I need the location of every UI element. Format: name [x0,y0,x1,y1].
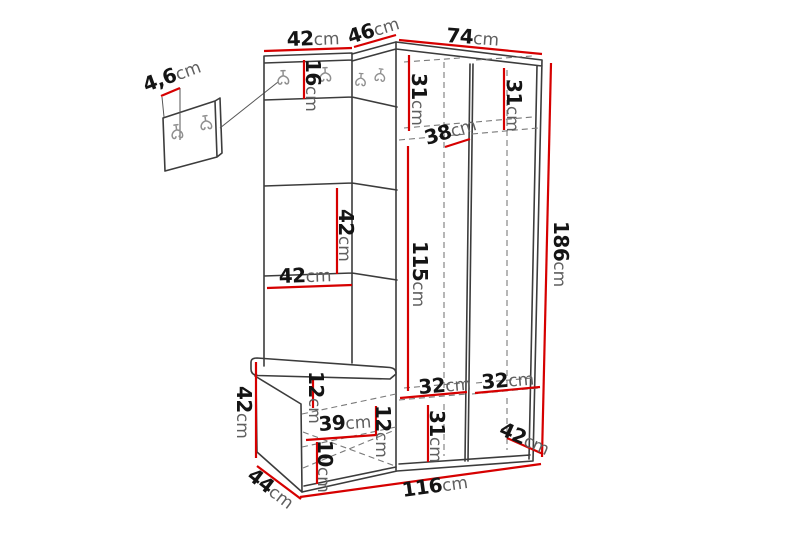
dimension-labels: 42cm 46cm 74cm 16cm 4,6cm 42cm 42cm 31cm… [140,10,573,513]
dimension-diagram: 42cm 46cm 74cm 16cm 4,6cm 42cm 42cm 31cm… [0,0,800,533]
dim-label-top-width-left: 42cm [286,25,340,51]
dim-label-bench-bottom-clearance: 10cm [313,440,337,493]
left-panel [264,53,397,366]
dim-label-wardrobe-width: 74cm [446,23,500,51]
main-unit-hooks [278,68,386,86]
dim-label-bottom-section-height: 31cm [425,410,449,463]
dim-label-top-shelf-depth: 38cm [421,111,478,149]
coat-hook-icon [200,115,212,130]
dim-label-hook-rail-height: 16cm [301,59,325,112]
dim-label-bench-right-clearance: 12cm [371,405,395,458]
coat-hook-icon [171,124,183,139]
dim-label-bench-depth: 44cm [243,463,300,514]
dim-label-panel-section-width: 42cm [278,262,332,288]
coat-hook-icon [278,71,289,85]
dim-label-door-height: 115cm [408,241,432,307]
coat-hook-icon [375,68,386,81]
dim-label-top-shelf-left-height: 31cm [407,73,431,126]
wall-hook-panel [162,82,278,171]
dim-label-bottom-left-width: 32cm [417,370,472,399]
dim-label-total-height: 186cm [549,221,573,287]
dim-label-bench-height: 42cm [232,386,256,439]
dim-label-top-shelf-right-height: 31cm [502,79,526,132]
dim-label-bench-inner-width: 39cm [318,408,372,436]
dim-label-wall-panel-depth: 4,6cm [140,54,204,97]
dim-label-bottom-right-width: 32cm [480,365,535,394]
dim-label-panel-section-height: 42cm [334,209,358,262]
coat-hook-icon [356,73,366,86]
pointer-line [220,82,278,128]
dimension-diagram-page: 42cm 46cm 74cm 16cm 4,6cm 42cm 42cm 31cm… [0,0,800,533]
dim-label-wardrobe-depth: 42cm [496,417,554,460]
dim-label-total-width: 116cm [400,469,469,502]
